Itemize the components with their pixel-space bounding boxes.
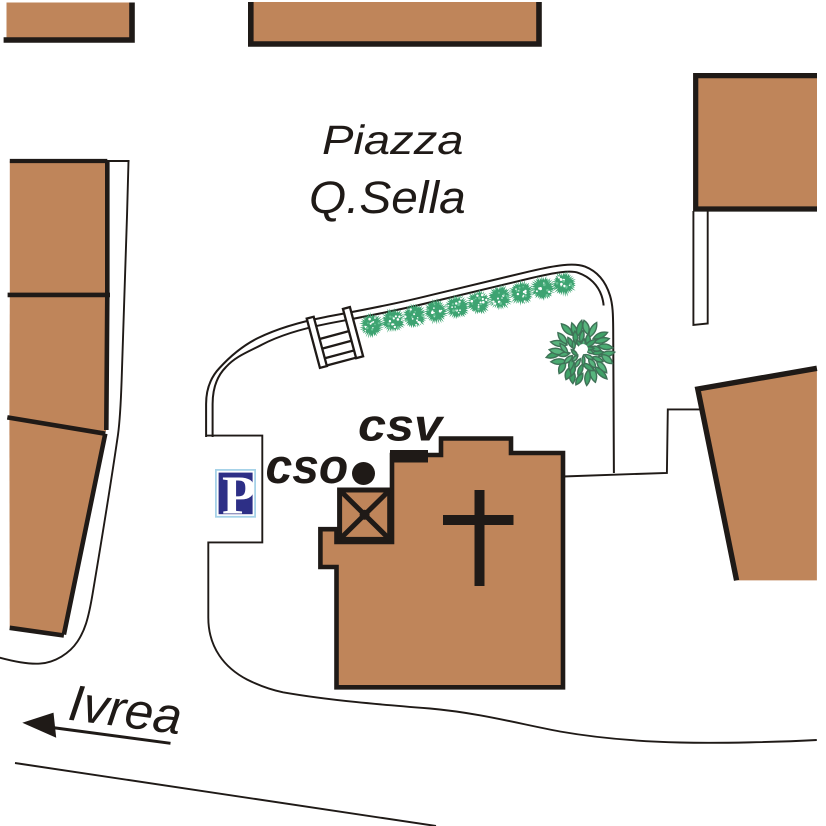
svg-text:csv: csv [358, 400, 445, 451]
svg-text:Piazza: Piazza [322, 117, 464, 163]
svg-text:Q.Sella: Q.Sella [309, 172, 466, 223]
svg-text:P: P [222, 465, 256, 526]
svg-text:cso: cso [266, 440, 349, 494]
